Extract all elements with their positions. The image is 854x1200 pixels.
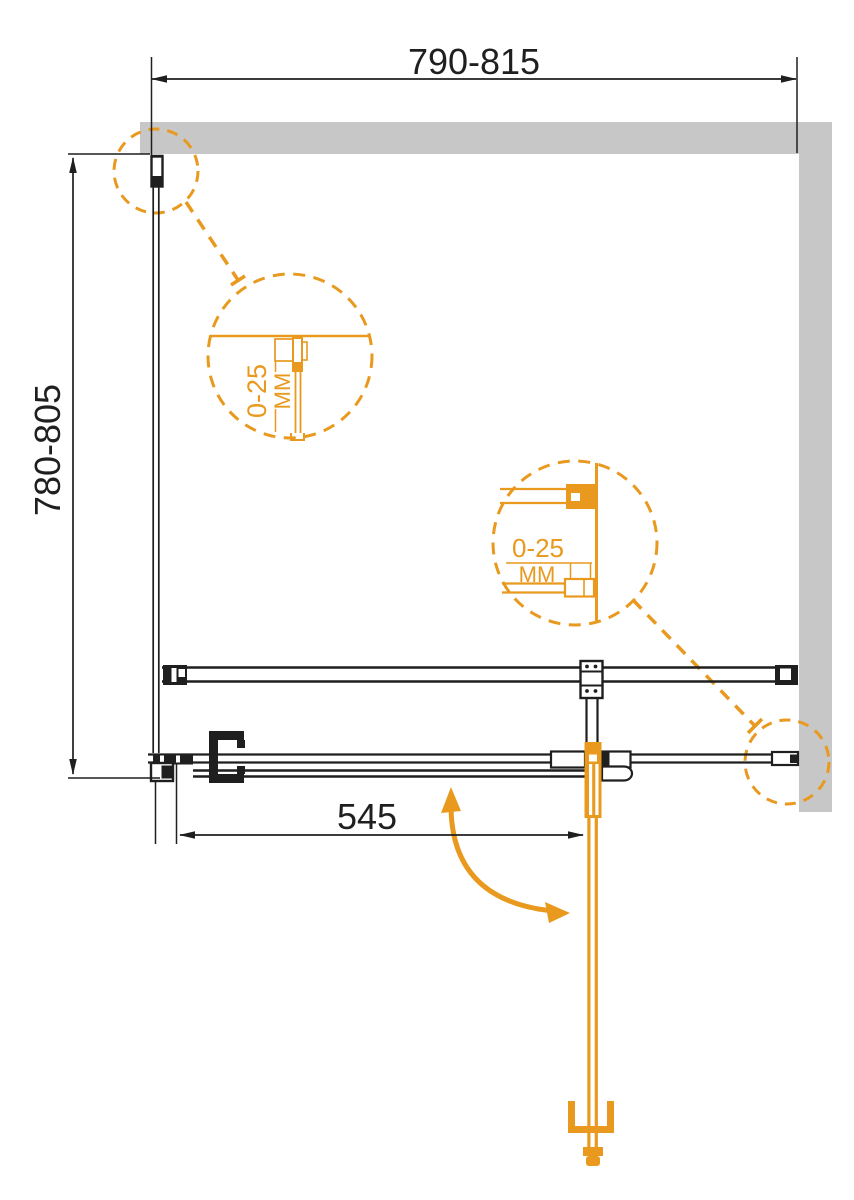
door-track <box>148 731 798 783</box>
dimension-width-label: 790-815 <box>408 41 540 82</box>
pivot-profile <box>585 742 602 818</box>
detail-left-unit-label: ММ <box>270 373 295 410</box>
stabilizer-bar <box>162 661 798 743</box>
technical-drawing-page: 790-815 780-805 545 0-25 ММ <box>0 0 854 1200</box>
dimension-height-label: 780-805 <box>27 384 68 516</box>
swing-arrowhead-up <box>441 787 461 813</box>
door-handle-open <box>572 1101 611 1130</box>
door-stopper <box>602 767 632 781</box>
leader-line-left <box>186 202 245 285</box>
adjustment-range-box <box>275 339 293 361</box>
detail-circle-left: 0-25 ММ <box>208 274 372 440</box>
detail-left-range-label: 0-25 <box>242 364 272 418</box>
pivot-clamp-plate-left <box>551 752 585 768</box>
door-open-position <box>441 742 611 1166</box>
wall-right <box>799 122 832 812</box>
door-handle-closed <box>209 731 245 783</box>
shower-enclosure-plan-drawing: 790-815 780-805 545 0-25 ММ <box>0 0 854 1200</box>
walls <box>140 122 832 812</box>
detail-circle-right: 0-25 ММ <box>493 461 657 625</box>
dimension-door-width-label: 545 <box>337 796 397 837</box>
bar-center-clamp <box>581 661 603 698</box>
wall-top <box>140 122 799 154</box>
swing-arrow <box>441 787 570 923</box>
detail-right-unit-label: ММ <box>519 562 556 587</box>
open-door-glass-line <box>595 818 598 1153</box>
detail-track-bracket <box>565 579 594 597</box>
door-end-cap <box>583 1147 603 1156</box>
detail-right-range-label: 0-25 <box>512 533 564 563</box>
detail-circle-left-border <box>208 274 372 438</box>
dimension-height: 780-805 <box>27 154 160 778</box>
open-door-glass-line <box>587 818 590 1153</box>
fixed-panel-left <box>151 157 164 754</box>
swing-arrowhead-right <box>545 902 570 923</box>
detail-bar-bracket <box>566 484 595 509</box>
